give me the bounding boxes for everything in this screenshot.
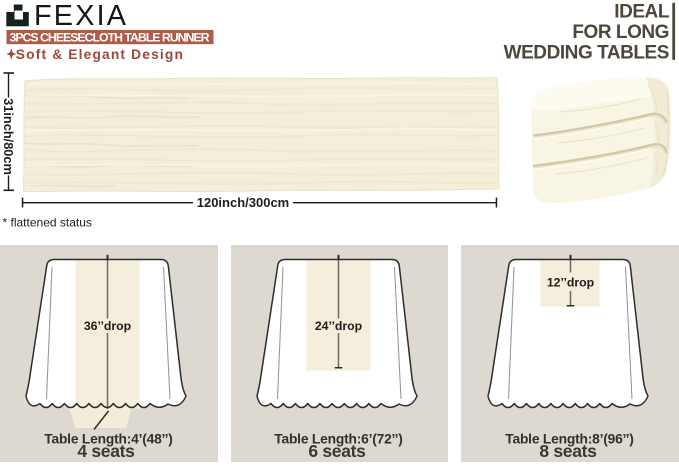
svg-text:31inch/80cm: 31inch/80cm — [1, 98, 16, 175]
svg-text:8 seats: 8 seats — [539, 441, 597, 461]
svg-text:120inch/300cm: 120inch/300cm — [197, 195, 290, 210]
svg-text:WEDDING TABLES: WEDDING TABLES — [504, 43, 669, 64]
svg-text:4 seats: 4 seats — [77, 441, 135, 461]
svg-text:24’’drop: 24’’drop — [315, 319, 362, 333]
svg-text:6 seats: 6 seats — [308, 441, 366, 461]
svg-text:FOR LONG: FOR LONG — [572, 22, 669, 43]
svg-text:Soft & Elegant Design: Soft & Elegant Design — [16, 47, 184, 62]
svg-text:36’’drop: 36’’drop — [84, 319, 131, 333]
svg-text:IDEAL: IDEAL — [614, 1, 670, 22]
svg-text:12’’drop: 12’’drop — [547, 276, 594, 290]
svg-text:FEXIA: FEXIA — [34, 0, 128, 32]
svg-text:3PCS CHEESECLOTH TABLE RUNNER: 3PCS CHEESECLOTH TABLE RUNNER — [10, 31, 210, 45]
svg-text:* flattened status: * flattened status — [3, 216, 92, 230]
